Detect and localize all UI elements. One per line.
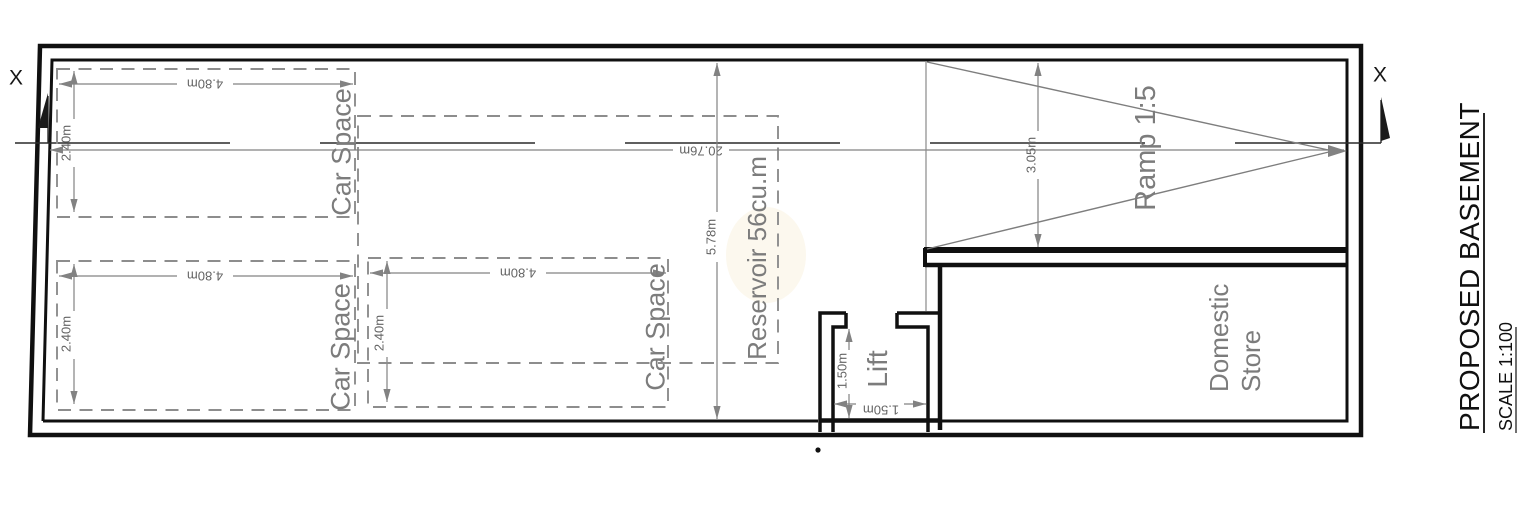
lift-depth-dim: 1.50m [835,353,850,389]
car-space-3-width: 2.40m [372,315,387,351]
ramp-direction-arrow [1328,145,1347,157]
title-block: PROPOSED BASEMENT SCALE 1:100 [1454,102,1516,433]
car-space-1-length: 4.80m [187,76,223,91]
domestic-store-label-line1: Domestic [1204,284,1234,392]
lift: 1.50m 1.50m Lift [820,313,940,432]
section-label-left: X [9,66,23,89]
car-space-1-width: 2.40m [59,125,74,161]
basement-plan-drawing: X X 4.80m 2.40m Car Space 4.80m 2.40m Ca… [0,0,1521,525]
dim-arrow [1034,234,1041,247]
floor-plan-sheet: X X 4.80m 2.40m Car Space 4.80m 2.40m Ca… [0,0,1521,525]
dim-arrow [70,391,77,404]
dim-arrow [1034,63,1041,76]
section-line-x: X X [9,63,1390,143]
dim-arrow [834,400,847,407]
ramp-label: Ramp 1:5 [1130,85,1162,211]
car-space-2-label: Car Space [325,283,355,411]
reservoir-label: Reservoir 56cu.m [742,156,772,360]
dim-arrow [70,199,77,212]
lift-wall-right-inner [897,313,928,432]
dim-arrow [70,264,77,277]
dim-arrow [383,389,390,402]
interior-length-dim: 20.76m [679,143,722,158]
dim-arrow [70,71,77,84]
dim-arrow [845,329,852,342]
domestic-store-label-line2: Store [1236,330,1266,392]
domestic-store: Domestic Store [925,265,1347,430]
interior-depth-dim: 5.78m [704,219,719,255]
plot-dot [815,447,820,452]
lift-width-dim: 1.50m [863,402,899,417]
dim-arrow [383,261,390,274]
section-label-right: X [1373,63,1387,86]
dim-arrow [913,400,926,407]
dim-arrow [370,269,383,276]
ramp-width-dim: 3.05m [1024,137,1039,173]
drawing-title: PROPOSED BASEMENT [1454,102,1485,431]
car-space-3: 4.80m 2.40m Car Space [368,258,670,407]
car-space-2: 4.80m 2.40m Car Space [57,261,355,411]
store-wall-top-left [925,265,1347,430]
dim-arrow [340,80,353,87]
dim-arrow [59,80,72,87]
dim-arrow [713,406,720,419]
dim-arrow [59,272,72,279]
car-space-2-length: 4.80m [187,268,223,283]
car-space-2-width: 2.40m [59,316,74,352]
drawing-scale: SCALE 1:100 [1496,322,1516,431]
car-space-3-length: 4.80m [500,265,536,280]
ramp: 3.05m Ramp 1:5 [924,61,1347,311]
car-space-1-label: Car Space [326,88,356,216]
lift-label: Lift [862,350,893,388]
dim-arrow [340,272,353,279]
car-space-3-label: Car Space [640,263,670,391]
dim-arrow [713,63,720,76]
section-flag-right [1381,97,1390,141]
